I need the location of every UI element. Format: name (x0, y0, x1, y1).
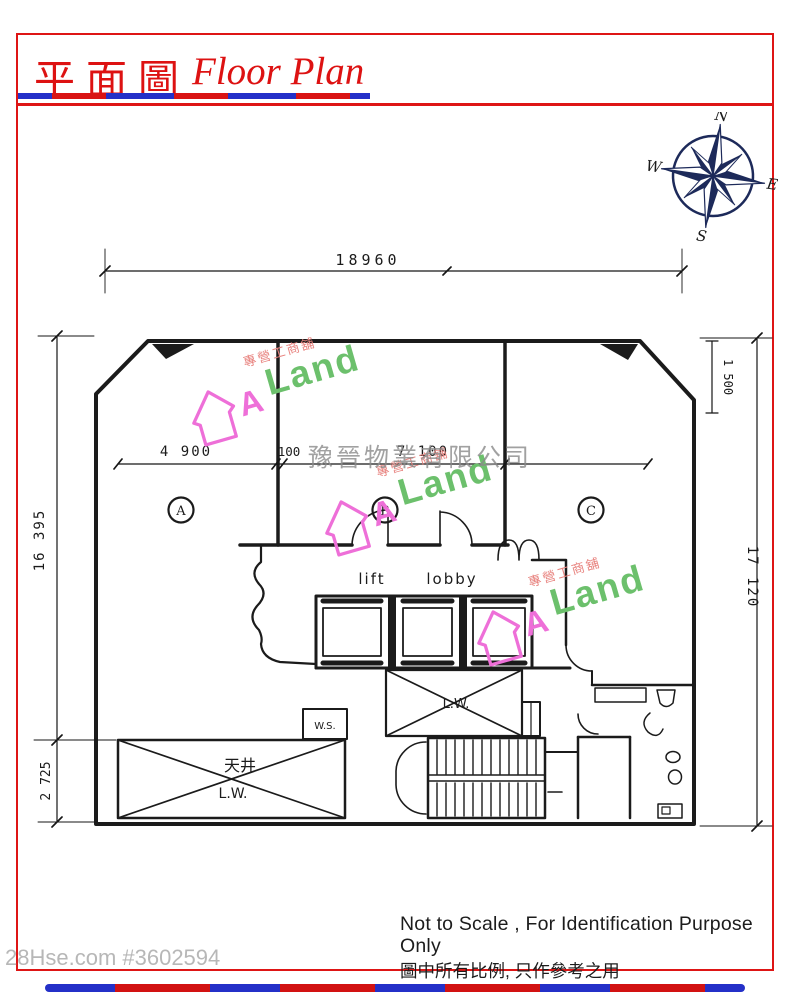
compass-rose-icon: N E S W (648, 112, 778, 242)
compass-east-label: E (765, 175, 778, 194)
unit-c-label: C (586, 504, 596, 519)
floor-plan-page: { "header": { "title_zh": "平面圖", "title_… (0, 0, 788, 1000)
light-well-left-label: L.W. (219, 786, 248, 802)
unit-a-label: A (175, 504, 186, 519)
compass-north-label: N (713, 112, 730, 126)
agency-watermark: 豫晉物業有限公司 (308, 438, 532, 474)
washroom-fixtures (595, 688, 682, 818)
lobby-scallop-wall (252, 545, 316, 664)
corner-fill-top-right (600, 344, 638, 360)
dim-top-width: 18960 (335, 251, 400, 269)
dim-left-lower: 2 725 (39, 761, 54, 800)
lift-car-2 (403, 608, 452, 656)
dim-right-height: 17 120 (744, 546, 760, 609)
staircase (428, 738, 545, 818)
light-well-center-label: L.W. (443, 697, 470, 712)
lobby-label: lobby (426, 570, 477, 588)
corner-fill-top-left (152, 344, 194, 359)
compass-west-label: W (648, 157, 664, 177)
water-service-label: W.S. (314, 721, 335, 732)
dim-right-upper: 1 500 (721, 359, 735, 395)
light-well-courtyard (118, 740, 345, 818)
compass-south-label: S (695, 226, 708, 242)
courtyard-label: 天井 (224, 756, 256, 775)
lift-car-1 (323, 608, 381, 656)
listing-watermark: 28Hse.com #3602594 (5, 945, 220, 971)
dim-left-height: 16 395 (32, 509, 48, 572)
